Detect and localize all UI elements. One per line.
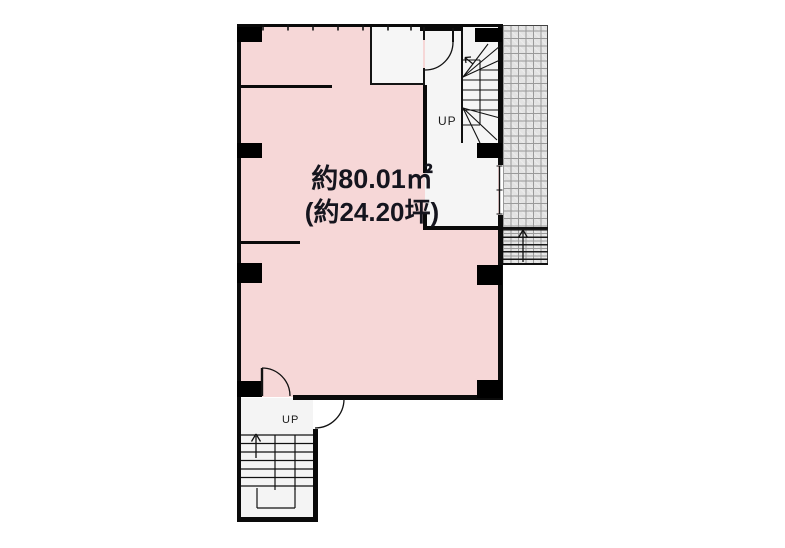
- pillar: [237, 27, 262, 42]
- closet-wall-left: [370, 27, 372, 85]
- closet-wall-bottom: [370, 83, 425, 85]
- wall-east-lower: [498, 215, 503, 400]
- area-tsubo-text: (約24.20坪): [248, 196, 496, 229]
- wall-room-bottom: [293, 395, 503, 400]
- entry-door-swing-arc: [315, 399, 344, 428]
- partition-wall-upper: [241, 85, 332, 88]
- partition-wall-lower: [241, 241, 300, 244]
- wall-hall-left-upper: [423, 85, 427, 173]
- pillar: [475, 28, 502, 42]
- wall-stairwell-right: [313, 429, 318, 522]
- upper-staircase-up-label: UP: [438, 114, 457, 128]
- pillar: [477, 143, 502, 158]
- lower-staircase-up-label: UP: [282, 414, 299, 426]
- pillar: [237, 143, 262, 158]
- floor-plan: 約80.01㎡ (約24.20坪) UP UP: [0, 0, 785, 548]
- wall-top-thick-segment: [420, 24, 463, 31]
- closet-wall-right-lower: [423, 68, 425, 85]
- exterior-steps: [503, 227, 548, 265]
- closet-room: [372, 27, 423, 83]
- lower-stairwell-room: [241, 398, 313, 517]
- pillar: [477, 265, 502, 285]
- wall-stairwell-bottom: [237, 517, 318, 522]
- area-label: 約80.01㎡ (約24.20坪): [248, 163, 496, 229]
- area-size-text: 約80.01㎡: [248, 163, 496, 196]
- pillar: [237, 263, 262, 283]
- pillar: [477, 380, 502, 398]
- closet-wall-right-upper: [423, 27, 425, 40]
- pillar: [237, 381, 262, 397]
